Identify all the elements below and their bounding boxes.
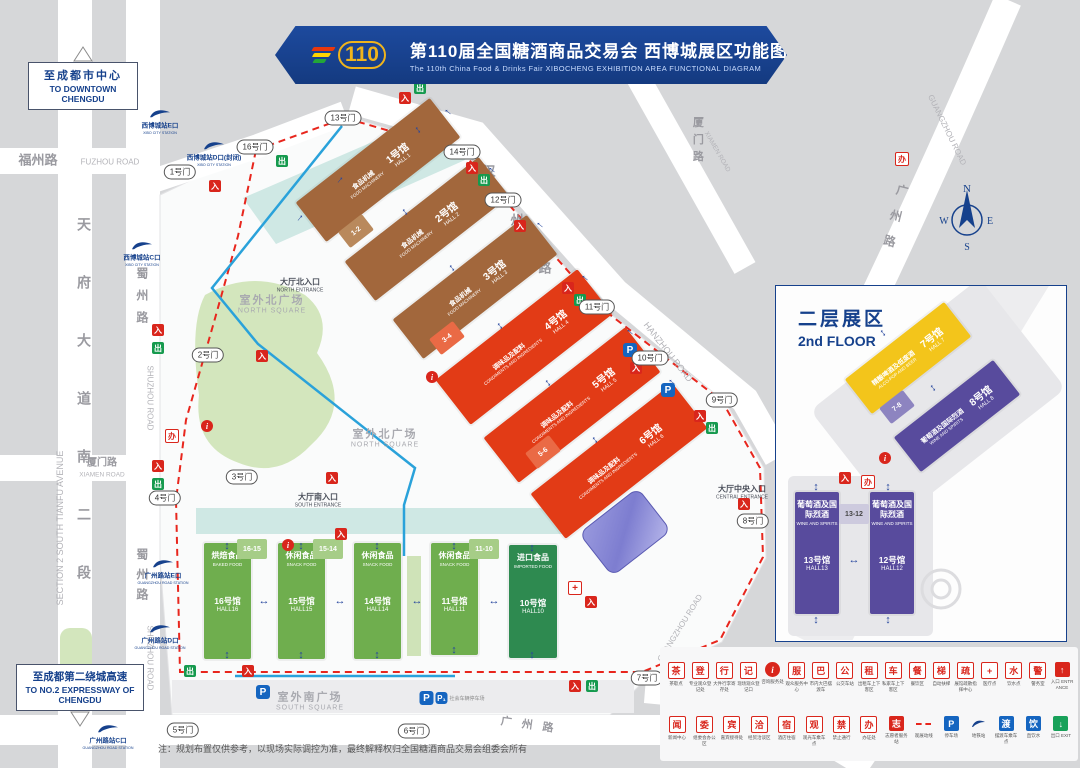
legend-item: 观展动线 xyxy=(911,716,937,746)
gate-pill: 5号门 xyxy=(167,723,199,738)
hall-hall13: 葡萄酒及国际烈酒WINE AND SPIRITS13号馆HALL13 xyxy=(795,492,839,614)
exit-icon: 出 xyxy=(276,155,288,167)
legend-panel: 茶茶歇点登专业观众登记处行大件行李寄存处记现场观众登记口i咨询服务处服观众服务中… xyxy=(660,647,1078,761)
legend-item: ↑入口 ENTRANCE xyxy=(1050,662,1074,692)
gate-pill: 4号门 xyxy=(149,491,181,506)
legend-item: 宾嘉宾接待处 xyxy=(719,716,745,746)
legend-item: 行大件行李寄存处 xyxy=(712,662,736,692)
direction-arrow-icon: ↕ xyxy=(374,649,380,661)
gate-pill: 11号门 xyxy=(579,300,615,315)
legend-item: 闻新闻中心 xyxy=(664,716,690,746)
legend-item-label: 饮水点 xyxy=(1007,681,1021,686)
legend-item-label: 观展动线 xyxy=(915,733,933,738)
legend-item-label: 自动扶梯 xyxy=(932,681,950,686)
page-title: 第110届全国糖酒商品交易会 西博城展区功能图 xyxy=(410,37,788,62)
legend-glyph-icon: i xyxy=(765,662,780,677)
info-icon: i xyxy=(426,371,438,383)
legend-item: P停车场 xyxy=(938,716,964,746)
info-icon: i xyxy=(879,452,891,464)
entrance-label: 大厅北入口NORTH ENTRANCE xyxy=(277,277,324,294)
downtown-callout: 至成都市中心 TO DOWNTOWN CHENGDU xyxy=(28,62,138,110)
entrance-icon: 入 xyxy=(466,162,478,174)
legend-item: +医疗点 xyxy=(978,662,1002,692)
info-icon: i xyxy=(282,539,294,551)
road-label: 厦门路 xyxy=(691,117,704,168)
direction-arrow-icon: ↕ xyxy=(529,649,535,661)
gate-pill: 8号门 xyxy=(737,514,769,529)
legend-item: 公公交车站 xyxy=(833,662,857,692)
exit-icon: 出 xyxy=(184,665,196,677)
entrance-icon: 入 xyxy=(569,680,581,692)
legend-item: 车私家车上下客区 xyxy=(881,662,905,692)
entrance-icon: 入 xyxy=(694,410,706,422)
road-label: 蜀州路 xyxy=(134,267,148,333)
hall-hall11: 休闲食品SNACK FOOD11号馆HALL11 xyxy=(431,543,478,655)
exit-icon: 出 xyxy=(152,478,164,490)
hall-connector: 15-14 xyxy=(313,539,343,559)
medical-icon: + xyxy=(568,581,582,595)
legend-item-label: 大件行李寄存处 xyxy=(712,681,736,692)
legend-item-label: 餐饮区 xyxy=(911,681,925,686)
legend-item-label: 展馆疏散指挥中心 xyxy=(954,681,978,692)
legend-glyph-icon: 服 xyxy=(788,662,805,679)
metro-swoosh-icon xyxy=(97,723,119,733)
metro-swoosh-icon xyxy=(131,240,153,250)
legend-glyph-icon: 餐 xyxy=(909,662,926,679)
entrance-icon: 入 xyxy=(152,324,164,336)
entrance-icon: 入 xyxy=(738,498,750,510)
legend-item-label: 入口 ENTRANCE xyxy=(1050,679,1074,690)
metro-station-marker: 广州路站E口GUANGZHOU ROAD STATION xyxy=(128,555,198,585)
metro-swoosh-icon xyxy=(971,716,986,731)
hall-connector: 13-12 xyxy=(839,504,869,524)
legend-glyph-icon: 茶 xyxy=(668,662,685,679)
info-icon: i xyxy=(201,420,213,432)
hall-hall16: 烘焙食品BAKED FOOD16号馆HALL16 xyxy=(204,543,251,659)
square-label: 室外北广场NORTH SQUARE xyxy=(238,292,306,315)
hall-connector: 16-15 xyxy=(237,539,267,559)
metro-station-marker: 广州路站D口GUANGZHOU ROAD STATION xyxy=(125,620,195,650)
fair-logo: 110 xyxy=(309,41,386,68)
legend-glyph-icon: 疏 xyxy=(957,662,974,679)
exit-icon: 出 xyxy=(706,422,718,434)
legend-item: 宿酒店住宿 xyxy=(774,716,800,746)
legend-glyph-icon: 志 xyxy=(889,716,904,731)
inset-title-en: 2nd FLOOR xyxy=(798,333,886,349)
legend-item-label: 观光车乘车点 xyxy=(801,735,827,746)
direction-arrow-icon: ↕ xyxy=(298,649,304,661)
gate-pill: 1号门 xyxy=(164,165,196,180)
legend-glyph-icon: 渡 xyxy=(999,716,1014,731)
legend-item: i咨询服务处 xyxy=(761,662,785,692)
direction-arrow-icon: ↕ xyxy=(224,649,230,661)
legend-item: 警警务室 xyxy=(1026,662,1050,692)
gate-pill: 3号门 xyxy=(226,470,258,485)
direction-arrow-icon: ↕ xyxy=(529,542,535,554)
downtown-callout-cn: 至成都市中心 xyxy=(32,67,134,83)
route-dash-icon xyxy=(916,716,931,731)
road-label: FUZHOU ROAD xyxy=(81,157,140,166)
legend-glyph-icon: + xyxy=(981,662,998,679)
legend-item-label: 办证处 xyxy=(862,735,876,740)
entrance-icon: 入 xyxy=(256,350,268,362)
legend-item: 志志愿者服务站 xyxy=(883,716,909,746)
road-label: XIAMEN ROAD xyxy=(79,471,125,478)
direction-arrow-icon: ↕ xyxy=(885,481,891,493)
legend-glyph-icon: 租 xyxy=(861,662,878,679)
parking-icon: P xyxy=(661,383,675,397)
gate-pill: 16号门 xyxy=(237,140,274,155)
title-banner: 110 第110届全国糖酒商品交易会 西博城展区功能图 The 110th Ch… xyxy=(275,26,787,84)
exhibition-map: 110 第110届全国糖酒商品交易会 西博城展区功能图 The 110th Ch… xyxy=(0,0,1080,768)
gate-pill: 7号门 xyxy=(631,671,663,686)
legend-glyph-icon: ↓ xyxy=(1053,716,1068,731)
entrance-label: 大厅南入口SOUTH ENTRANCE xyxy=(295,492,341,509)
entrance-icon: 入 xyxy=(399,92,411,104)
direction-arrow-icon: ↔ xyxy=(259,595,270,607)
expressway-callout-en: TO NO.2 EXPRESSWAY OF CHENGDU xyxy=(20,686,140,706)
svg-text:S: S xyxy=(964,242,970,253)
metro-swoosh-icon xyxy=(203,140,225,150)
direction-arrow-icon: ↔ xyxy=(849,554,860,566)
gate-pill: 12号门 xyxy=(485,193,522,208)
entrance-icon: 入 xyxy=(839,472,851,484)
fair-logo-number: 110 xyxy=(338,41,386,68)
direction-arrow-icon: ↕ xyxy=(224,540,230,552)
road-label: SECTION 2 SOUTH TIANFU AVENUE xyxy=(55,451,65,606)
road-label: SHUZHOU ROAD xyxy=(145,366,154,431)
gate-pill: 2号门 xyxy=(192,348,224,363)
legend-glyph-icon: 记 xyxy=(740,662,757,679)
legend-glyph-icon: 委 xyxy=(696,716,713,733)
legend-item-label: 咨询服务处 xyxy=(761,679,784,684)
legend-glyph-icon: 办 xyxy=(860,716,877,733)
svg-text:E: E xyxy=(987,216,993,227)
legend-item: 饮直饮水 xyxy=(1020,716,1046,746)
gate-pill: 6号门 xyxy=(398,724,430,739)
legend-glyph-icon: 饮 xyxy=(1026,716,1041,731)
legend-item-label: 医疗点 xyxy=(983,681,997,686)
legend-item: 登专业观众登记处 xyxy=(688,662,712,692)
legend-glyph-icon: 公 xyxy=(836,662,853,679)
entrance-icon: 入 xyxy=(562,282,574,294)
svg-text:W: W xyxy=(939,216,949,227)
direction-arrow-icon: ↕ xyxy=(374,540,380,552)
exit-icon: 出 xyxy=(152,342,164,354)
compass-icon: N W E S xyxy=(938,182,996,259)
legend-item-label: 停车场 xyxy=(944,733,958,738)
square-label: 室外南广场SOUTH SQUARE xyxy=(276,689,344,712)
hall-hall14: 休闲食品SNACK FOOD14号馆HALL14 xyxy=(354,543,401,659)
road-label: 厦门路 xyxy=(87,457,117,469)
direction-arrow-icon: ↕ xyxy=(813,481,819,493)
entrance-icon: 入 xyxy=(326,472,338,484)
expressway-callout: 至成都第二绕城高速 TO NO.2 EXPRESSWAY OF CHENGDU xyxy=(16,664,144,711)
metro-station-marker: 西博城站E口XIBO CITY STATION xyxy=(125,105,195,135)
metro-swoosh-icon xyxy=(149,623,171,633)
permit-office-icon: 办 xyxy=(861,475,875,489)
page-subtitle: The 110th China Food & Drinks Fair XIBOC… xyxy=(410,64,788,73)
permit-office-icon: 办 xyxy=(165,429,179,443)
legend-item-label: 现场观众登记口 xyxy=(736,681,760,692)
legend-glyph-icon: 警 xyxy=(1029,662,1046,679)
hall-connector: 11-10 xyxy=(469,539,499,559)
legend-glyph-icon: 车 xyxy=(885,662,902,679)
legend-item-label: 茶歇点 xyxy=(669,681,683,686)
up-arrow-icon xyxy=(73,46,93,62)
legend-glyph-icon: ↑ xyxy=(1055,662,1070,677)
legend-item-label: 酒店住宿 xyxy=(778,735,796,740)
direction-arrow-icon: ↔ xyxy=(489,595,500,607)
legend-item: 渡摆渡车乘车点 xyxy=(993,716,1019,746)
road-label: 天府大道南二段 xyxy=(76,217,92,623)
entrance-icon: 入 xyxy=(514,220,526,232)
legend-item: 洽经贸洽谈区 xyxy=(746,716,772,746)
hall-hall10: 进口食品IMPORTED FOOD10号馆HALL10 xyxy=(509,545,557,658)
legend-glyph-icon: 禁 xyxy=(833,716,850,733)
metro-swoosh-icon xyxy=(149,108,171,118)
legend-item: 禁禁止通行 xyxy=(829,716,855,746)
legend-item-label: 专业观众登记处 xyxy=(688,681,712,692)
direction-arrow-icon: ↕ xyxy=(813,614,819,626)
legend-glyph-icon: 闻 xyxy=(669,716,686,733)
legend-glyph-icon: 巴 xyxy=(812,662,829,679)
gate-pill: 10号门 xyxy=(632,351,669,366)
exit-icon: 出 xyxy=(586,680,598,692)
legend-item: 办办证处 xyxy=(856,716,882,746)
entrance-icon: 入 xyxy=(585,596,597,608)
legend-glyph-icon: 宿 xyxy=(778,716,795,733)
legend-item: 梯自动扶梯 xyxy=(929,662,953,692)
legend-item: 委组委会办公区 xyxy=(691,716,717,746)
legend-item-label: 摆渡车乘车点 xyxy=(993,733,1019,744)
legend-item: 疏展馆疏散指挥中心 xyxy=(954,662,978,692)
legend-item: 巴市内大巴摆渡车 xyxy=(809,662,833,692)
legend-item-label: 禁止通行 xyxy=(833,735,851,740)
down-arrow-icon xyxy=(70,711,90,727)
gate-pill: 14号门 xyxy=(444,145,481,160)
direction-arrow-icon: ↔ xyxy=(335,595,346,607)
inset-title-cn: 二层展区 xyxy=(798,304,886,331)
entrance-icon: 入 xyxy=(242,665,254,677)
downtown-callout-en: TO DOWNTOWN CHENGDU xyxy=(32,85,134,105)
legend-item-label: 出口 EXIT xyxy=(1051,733,1071,738)
legend-item-label: 志愿者服务站 xyxy=(883,733,909,744)
legend-item: 租出租车上下客区 xyxy=(857,662,881,692)
direction-arrow-icon: ↔ xyxy=(412,595,423,607)
legend-item-label: 观众服务中心 xyxy=(785,681,809,692)
entrance-icon: 入 xyxy=(335,528,347,540)
legend-item: 服观众服务中心 xyxy=(785,662,809,692)
legend-item: 地铁站 xyxy=(966,716,992,746)
legend-item-label: 出租车上下客区 xyxy=(857,681,881,692)
legend-item-label: 新闻中心 xyxy=(668,735,686,740)
legend-glyph-icon: P xyxy=(944,716,959,731)
gate-pill: 9号门 xyxy=(706,393,738,408)
exit-icon: 出 xyxy=(478,174,490,186)
direction-arrow-icon: ↕ xyxy=(885,614,891,626)
legend-item-label: 市内大巴摆渡车 xyxy=(809,681,833,692)
legend-item: 观观光车乘车点 xyxy=(801,716,827,746)
legend-item-label: 组委会办公区 xyxy=(691,735,717,746)
entrance-icon: 入 xyxy=(209,180,221,192)
legend-item-label: 私家车上下客区 xyxy=(881,681,905,692)
svg-text:N: N xyxy=(963,183,971,195)
legend-glyph-icon: 洽 xyxy=(751,716,768,733)
legend-item-label: 嘉宾接待处 xyxy=(721,735,744,740)
direction-arrow-icon: ↕ xyxy=(451,644,457,656)
footnote: 注：规划布置仅供参考，以现场实际调控为准，最终解释权归全国糖酒商品交易会组委会所… xyxy=(158,742,527,755)
legend-item: 茶茶歇点 xyxy=(664,662,688,692)
legend-item: 餐餐饮区 xyxy=(905,662,929,692)
parking-icon: PP₁社会车辆停车场 xyxy=(419,691,484,705)
legend-item: 记现场观众登记口 xyxy=(736,662,760,692)
metro-swoosh-icon xyxy=(152,558,174,568)
legend-item-label: 公交车站 xyxy=(836,681,854,686)
legend-glyph-icon: 梯 xyxy=(933,662,950,679)
gate-pill: 13号门 xyxy=(325,111,362,126)
legend-item: ↓出口 EXIT xyxy=(1048,716,1074,746)
legend-item-label: 警务室 xyxy=(1031,681,1045,686)
expressway-callout-cn: 至成都第二绕城高速 xyxy=(20,669,140,684)
direction-arrow-icon: ↕ xyxy=(451,540,457,552)
legend-item-label: 经贸洽谈区 xyxy=(748,735,771,740)
metro-station-marker: 西博城站C口XIBO CITY STATION xyxy=(107,237,177,267)
legend-item-label: 地铁站 xyxy=(972,733,986,738)
legend-item: 水饮水点 xyxy=(1002,662,1026,692)
legend-glyph-icon: 水 xyxy=(1005,662,1022,679)
legend-glyph-icon: 登 xyxy=(692,662,709,679)
road-label: 福州路 xyxy=(18,154,57,169)
hall-hall12: 葡萄酒及国际烈酒WINE AND SPIRITS12号馆HALL12 xyxy=(870,492,914,614)
hall-hall15: 休闲食品SNACK FOOD15号馆HALL15 xyxy=(278,543,325,659)
entrance-icon: 入 xyxy=(152,460,164,472)
fair-logo-swoosh-icon xyxy=(304,47,335,63)
permit-office-icon: 办 xyxy=(895,152,909,166)
legend-item-label: 直饮水 xyxy=(1027,733,1041,738)
direction-arrow-icon: ↕ xyxy=(298,540,304,552)
parking-icon: P xyxy=(256,685,270,699)
legend-glyph-icon: 宾 xyxy=(723,716,740,733)
legend-glyph-icon: 行 xyxy=(716,662,733,679)
legend-glyph-icon: 观 xyxy=(806,716,823,733)
square-label: 室外北广场NORTH SQUARE xyxy=(351,426,419,449)
